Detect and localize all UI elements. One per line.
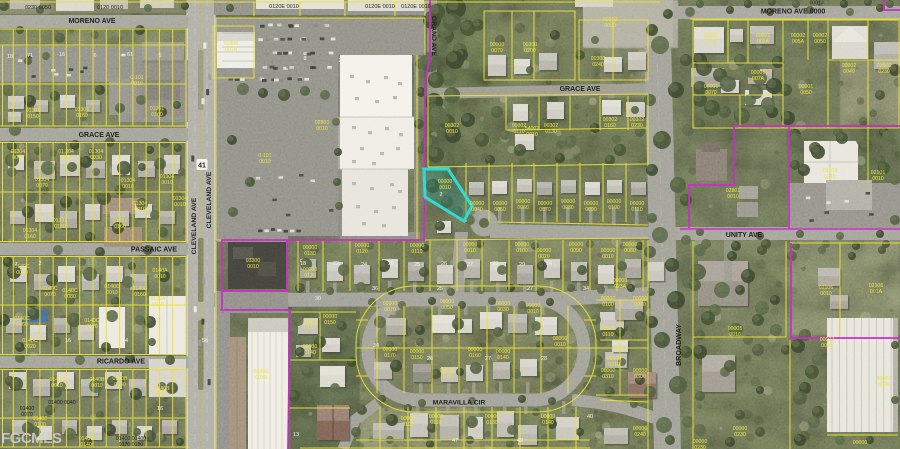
- svg-text:FGCMLS: FGCMLS: [1, 430, 62, 447]
